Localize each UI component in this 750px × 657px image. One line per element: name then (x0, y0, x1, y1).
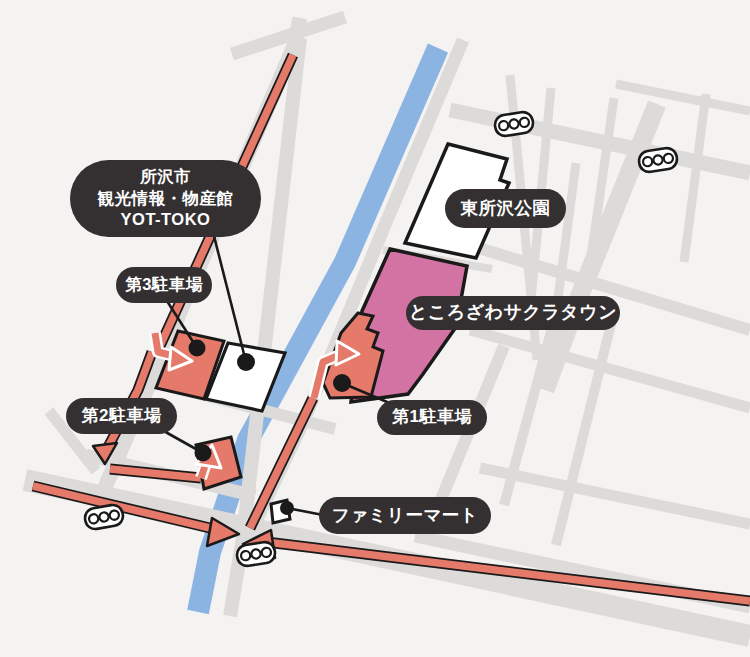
label-sakura-town: ところざわサクラタウン (406, 296, 620, 330)
label-yot-toko: 所沢市 観光情報・物産館 YOT-TOKO (70, 160, 261, 237)
traffic-signal-icon (83, 503, 124, 530)
label-parking-2: 第2駐車場 (66, 398, 177, 434)
road-segment (480, 468, 750, 524)
location-dot-familymart (280, 501, 294, 515)
label-higashi-tokorozawa-park: 東所沢公園 (445, 189, 566, 228)
road-segment (616, 84, 750, 111)
label-parking-3: 第3駐車場 (116, 267, 212, 303)
map-graphic (0, 0, 750, 657)
access-map: 所沢市 観光情報・物産館 YOT-TOKO 第3駐車場 第2駐車場 東所沢公園 … (0, 0, 750, 657)
location-dot-parking2 (195, 445, 212, 462)
location-dot-parking1 (333, 374, 351, 392)
route-line (110, 469, 201, 478)
location-dot-parking3 (189, 340, 206, 357)
location-dot-yot-toko (237, 353, 255, 371)
label-parking-1: 第1駐車場 (377, 400, 487, 435)
road-segment (684, 94, 706, 262)
label-familymart: ファミリーマート (319, 497, 491, 534)
